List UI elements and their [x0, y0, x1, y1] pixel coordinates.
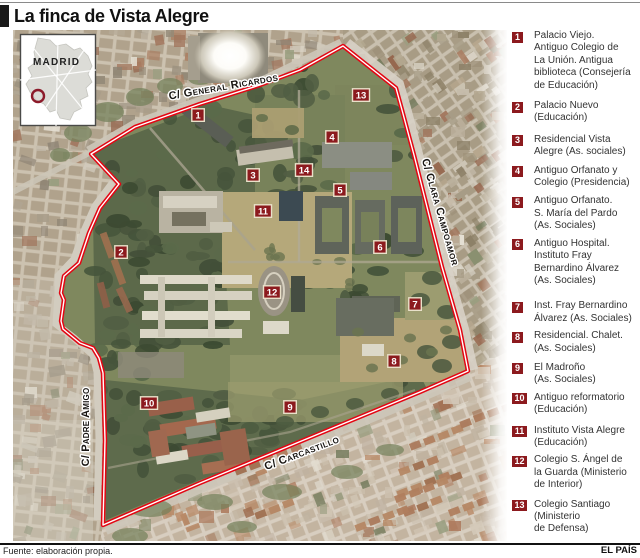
svg-text:4: 4 [329, 133, 335, 144]
svg-text:C/ Padre Amigo: C/ Padre Amigo [80, 388, 92, 467]
svg-text:6: 6 [377, 243, 382, 254]
svg-text:MADRID: MADRID [33, 57, 80, 68]
svg-text:1: 1 [195, 111, 201, 122]
svg-text:8: 8 [391, 357, 396, 368]
svg-text:2: 2 [118, 248, 123, 259]
svg-text:7: 7 [412, 300, 417, 311]
svg-text:9: 9 [287, 403, 292, 414]
svg-text:5: 5 [337, 186, 343, 197]
svg-text:11: 11 [258, 207, 269, 218]
svg-text:3: 3 [250, 171, 255, 182]
svg-text:12: 12 [267, 288, 278, 299]
svg-text:14: 14 [299, 166, 310, 177]
svg-text:13: 13 [356, 91, 367, 102]
svg-text:10: 10 [144, 399, 155, 410]
